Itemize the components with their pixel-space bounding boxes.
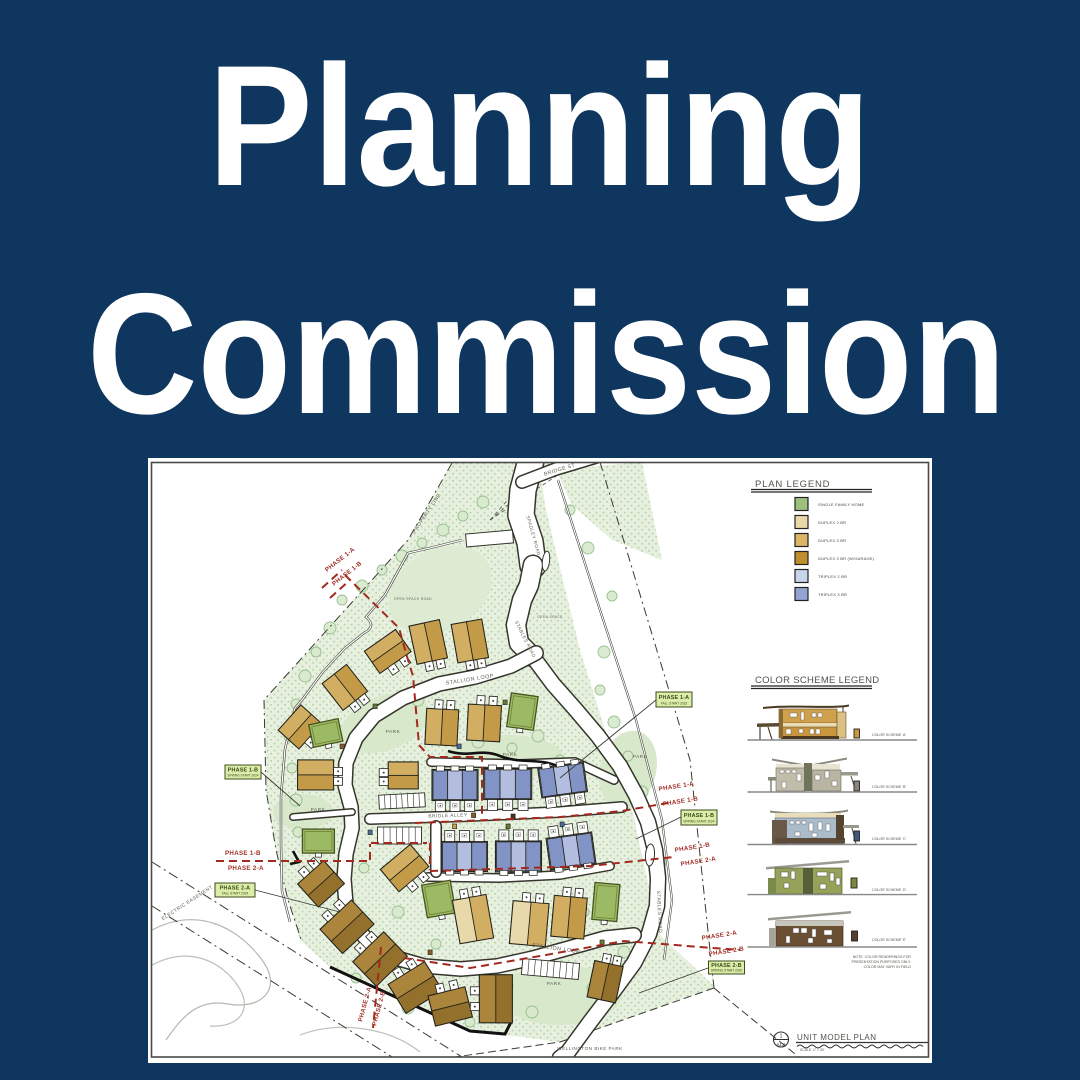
svg-text:COLOR SCHEME ‘E’: COLOR SCHEME ‘E’ bbox=[872, 938, 906, 942]
svg-text:WELLINGTON BIKE PARK: WELLINGTON BIKE PARK bbox=[557, 1046, 623, 1051]
svg-text:PARK: PARK bbox=[386, 729, 401, 735]
svg-text:1: 1 bbox=[780, 1034, 783, 1040]
svg-text:Commission: Commission bbox=[87, 258, 1006, 450]
svg-text:SPRING START 2024: SPRING START 2024 bbox=[683, 820, 714, 824]
svg-text:DUPLEX 2 BR: DUPLEX 2 BR bbox=[818, 520, 846, 525]
svg-text:UNIT MODEL PLAN: UNIT MODEL PLAN bbox=[797, 1033, 877, 1042]
svg-text:PARK: PARK bbox=[633, 754, 648, 760]
svg-text:SPRING START 2025: SPRING START 2025 bbox=[711, 969, 742, 973]
svg-text:PHASE 1-B: PHASE 1-B bbox=[225, 850, 261, 857]
svg-text:SCALE: 1" = 30': SCALE: 1" = 30' bbox=[800, 1048, 825, 1052]
svg-text:COLOR SCHEME ‘C’: COLOR SCHEME ‘C’ bbox=[872, 837, 907, 841]
svg-text:COLOR SCHEME ‘B’: COLOR SCHEME ‘B’ bbox=[872, 785, 906, 789]
svg-text:PRESENTATION PURPOSES ONLY.: PRESENTATION PURPOSES ONLY. bbox=[852, 960, 912, 964]
svg-text:PHASE 1-A: PHASE 1-A bbox=[659, 695, 690, 701]
svg-text:SPRING START 2024: SPRING START 2024 bbox=[227, 774, 258, 778]
svg-text:SINGLE FAMILY HOME: SINGLE FAMILY HOME bbox=[818, 502, 864, 507]
svg-text:DUPLEX 3 BR: DUPLEX 3 BR bbox=[818, 538, 846, 543]
svg-text:Planning: Planning bbox=[208, 30, 871, 222]
svg-text:COLOR MAY VARY IN FIELD: COLOR MAY VARY IN FIELD bbox=[864, 965, 912, 969]
svg-text:COLOR SCHEME LEGEND: COLOR SCHEME LEGEND bbox=[755, 675, 879, 686]
svg-text:NOTE: COLOR RENDERINGS FOR: NOTE: COLOR RENDERINGS FOR bbox=[853, 955, 912, 959]
svg-text:OPEN SPACE ROAD: OPEN SPACE ROAD bbox=[394, 597, 432, 601]
svg-text:PLAN LEGEND: PLAN LEGEND bbox=[755, 479, 830, 490]
svg-text:TRIPLEX 3 BR: TRIPLEX 3 BR bbox=[818, 592, 847, 597]
svg-text:OPEN SPACE: OPEN SPACE bbox=[537, 615, 563, 619]
svg-text:PARK: PARK bbox=[503, 752, 518, 758]
svg-text:DUPLEX 3 BR (W/GARAGE): DUPLEX 3 BR (W/GARAGE) bbox=[818, 556, 875, 561]
svg-text:PHASE 1-B: PHASE 1-B bbox=[684, 813, 715, 819]
svg-text:TRIPLEX 2 BR: TRIPLEX 2 BR bbox=[818, 574, 847, 579]
svg-text:COLOR SCHEME ‘A’: COLOR SCHEME ‘A’ bbox=[872, 733, 906, 737]
svg-text:COLOR SCHEME ‘D’: COLOR SCHEME ‘D’ bbox=[872, 888, 907, 892]
svg-text:PARK: PARK bbox=[547, 981, 562, 987]
svg-text:A1.2: A1.2 bbox=[776, 1042, 786, 1047]
svg-text:PARK: PARK bbox=[311, 807, 326, 813]
svg-text:FALL START 2024: FALL START 2024 bbox=[222, 892, 249, 896]
svg-text:FALL START 2023: FALL START 2023 bbox=[661, 702, 688, 706]
svg-text:PHASE 2-A: PHASE 2-A bbox=[228, 865, 264, 872]
